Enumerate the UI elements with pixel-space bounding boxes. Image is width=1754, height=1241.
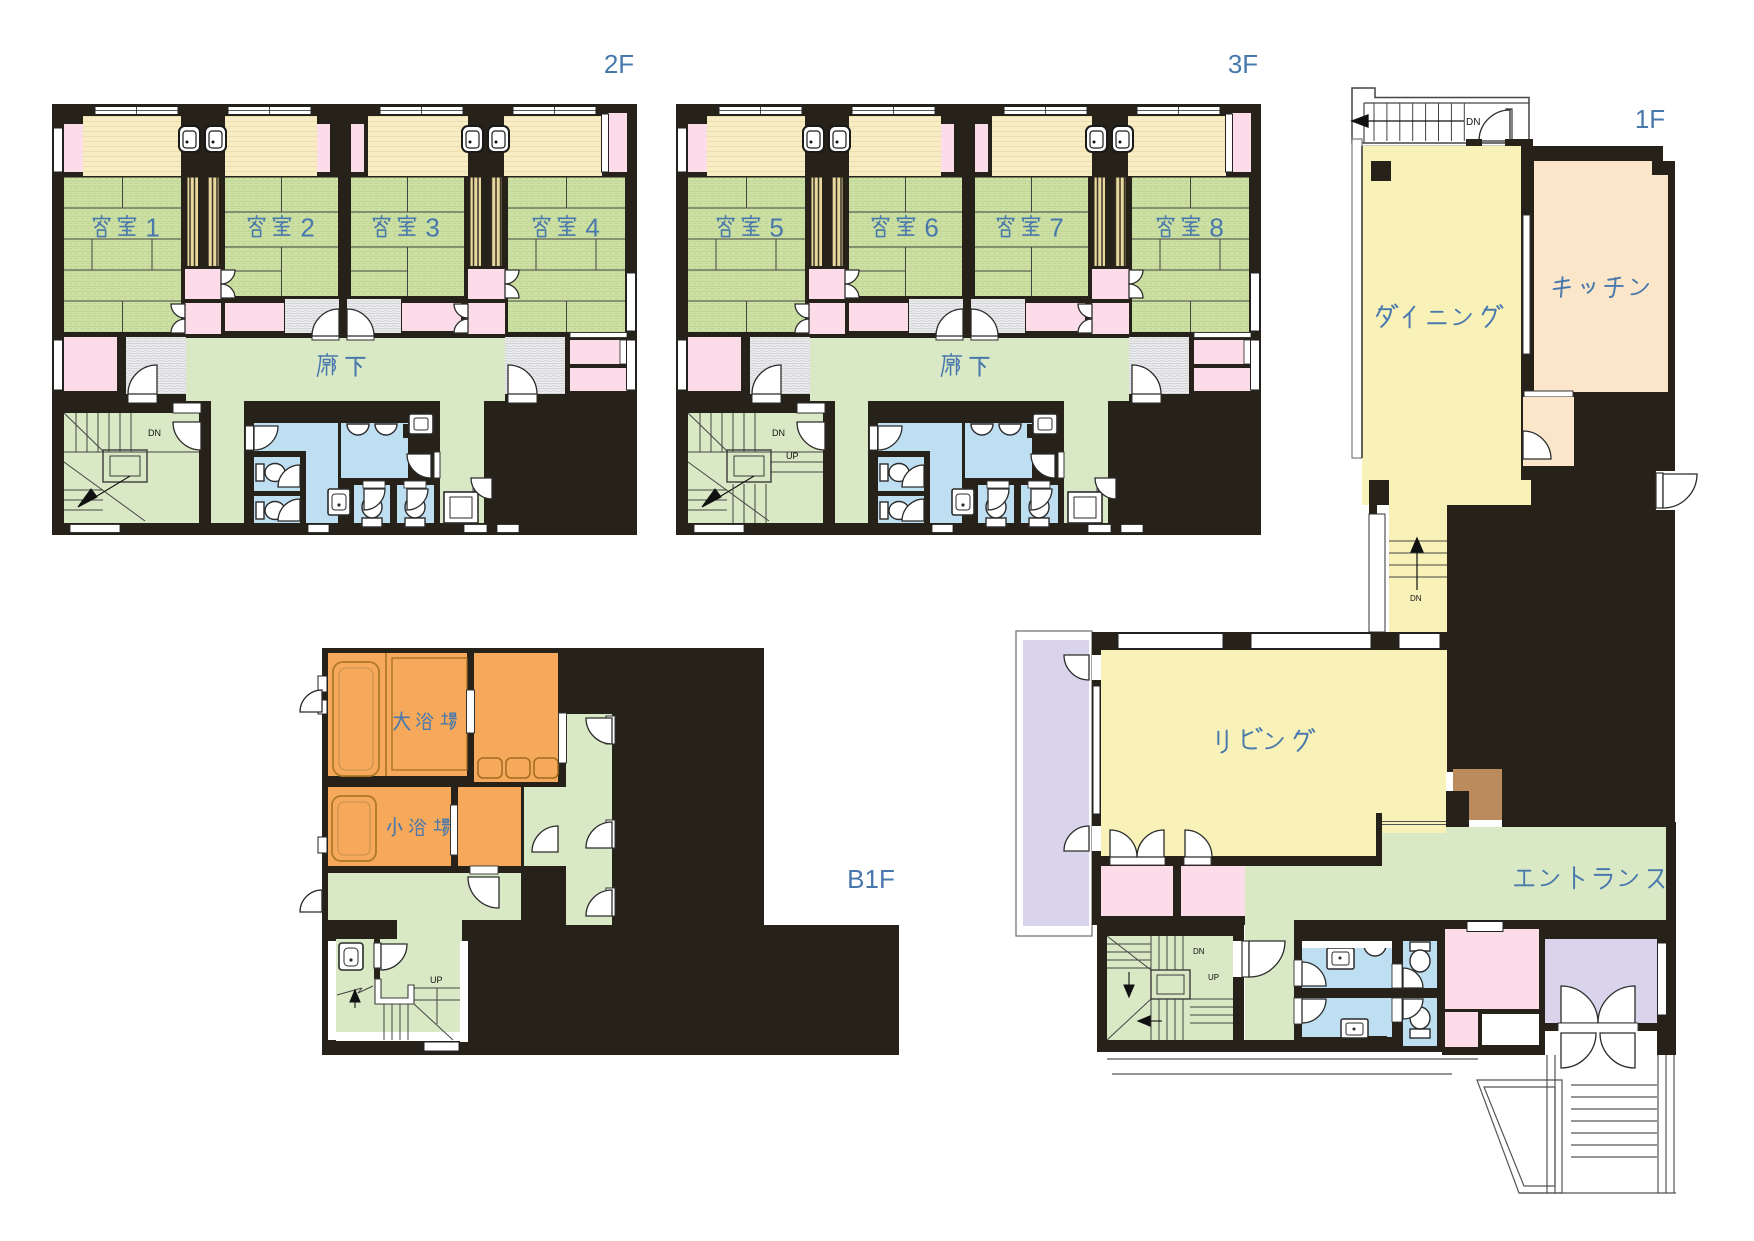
svg-text:DN: DN	[1466, 117, 1480, 128]
svg-text:3: 3	[425, 213, 439, 243]
svg-text:1F: 1F	[1635, 104, 1665, 134]
svg-text:UP: UP	[430, 975, 443, 985]
svg-text:2: 2	[300, 213, 314, 243]
svg-text:6: 6	[924, 213, 938, 243]
svg-text:7: 7	[1049, 213, 1063, 243]
svg-text:8: 8	[1209, 213, 1223, 243]
svg-text:5: 5	[769, 213, 783, 243]
svg-text:UP: UP	[786, 451, 799, 461]
svg-text:B1F: B1F	[847, 864, 895, 894]
svg-text:1: 1	[145, 213, 159, 243]
svg-text:UP: UP	[1208, 973, 1219, 982]
svg-text:2F: 2F	[604, 49, 634, 79]
svg-text:DN: DN	[1410, 594, 1422, 603]
svg-text:4: 4	[585, 213, 599, 243]
svg-text:3F: 3F	[1228, 49, 1258, 79]
svg-text:DN: DN	[1193, 947, 1205, 956]
